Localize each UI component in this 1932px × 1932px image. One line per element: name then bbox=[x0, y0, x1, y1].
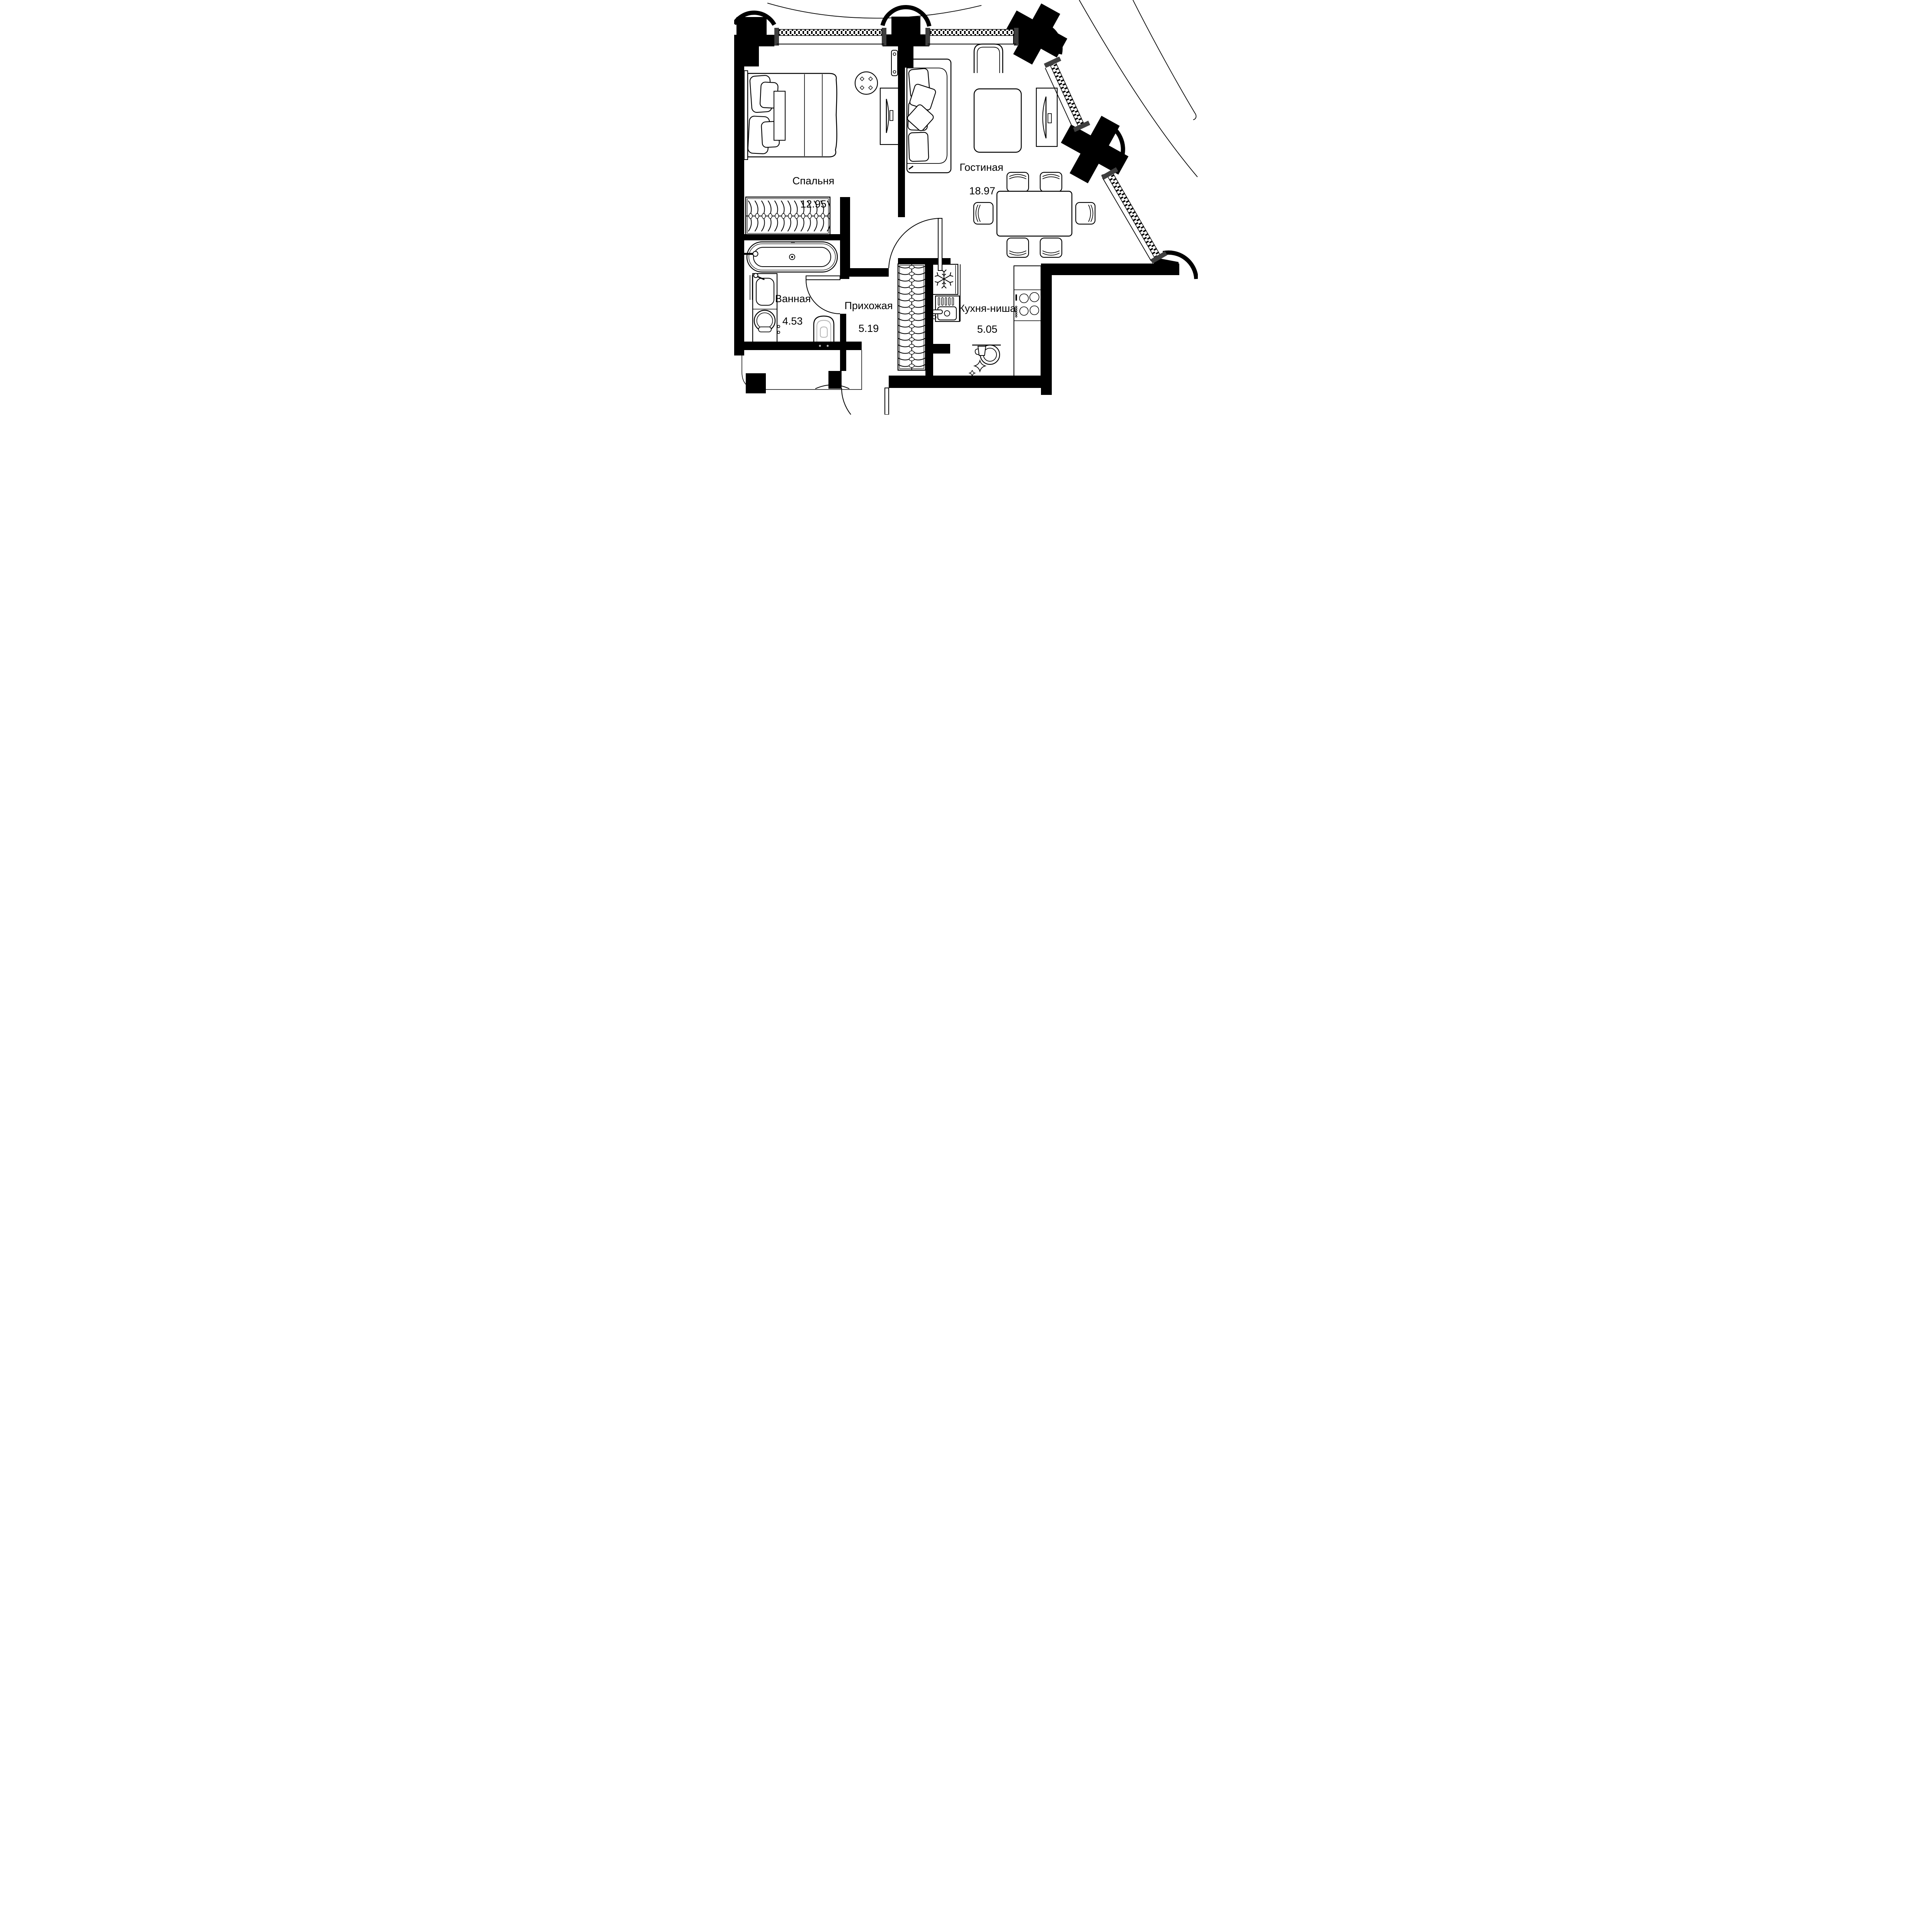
fridge-icon bbox=[932, 264, 958, 294]
bathroom-door bbox=[806, 276, 840, 314]
room-label-bathroom: Ванная 4.53 bbox=[775, 293, 811, 327]
bedroom-name: Спальня bbox=[793, 175, 835, 187]
armchair-icon bbox=[974, 44, 1003, 73]
hallway-closet-icon bbox=[898, 264, 925, 370]
window-band-diagonal-2 bbox=[1107, 172, 1161, 259]
window-band-living bbox=[930, 29, 1014, 36]
entry-door-leaf bbox=[885, 388, 889, 415]
toilet-mount-dot bbox=[827, 345, 828, 347]
tv-console-icon bbox=[1036, 88, 1057, 146]
column-east bbox=[1050, 105, 1139, 194]
cup-icon bbox=[978, 346, 986, 355]
entry-door-swing bbox=[842, 388, 851, 415]
bathtub-icon bbox=[744, 242, 837, 272]
kitchen-faucet-icon bbox=[932, 310, 942, 314]
dishwasher-icon bbox=[969, 345, 1001, 376]
sofa-icon bbox=[906, 59, 951, 173]
bathroom-door-leaf bbox=[806, 276, 840, 280]
floor-plan-page: Спальня 12.95 Гостиная 18.97 Ванная 4.53… bbox=[734, 0, 1198, 415]
dining-table-icon bbox=[997, 191, 1072, 236]
room-label-living: Гостиная 18.97 bbox=[959, 162, 1003, 197]
living-name: Гостиная bbox=[959, 162, 1003, 173]
toilet-mount-dot bbox=[819, 345, 821, 347]
room-label-kitchen: Кухня-ниша 5.05 bbox=[959, 303, 1016, 335]
rug-icon bbox=[974, 89, 1021, 152]
bathroom-door-swing bbox=[806, 280, 840, 314]
kitchen-name: Кухня-ниша bbox=[959, 303, 1016, 314]
kitchen-area: 5.05 bbox=[977, 323, 998, 335]
bedroom-dresser-tv-icon bbox=[880, 88, 901, 145]
living-area: 18.97 bbox=[969, 185, 995, 197]
hallway-area: 5.19 bbox=[859, 323, 879, 334]
bed-icon bbox=[744, 71, 837, 160]
round-side-table-icon bbox=[855, 72, 878, 94]
window-band-bedroom bbox=[779, 29, 882, 36]
toilet-icon bbox=[814, 316, 834, 342]
cooktop-icon bbox=[1014, 266, 1041, 379]
wall-mirror-icon bbox=[891, 50, 898, 76]
hallway-name: Прихожая bbox=[844, 300, 893, 311]
bedroom-door-leaf bbox=[938, 218, 942, 270]
bedroom-area: 12.95 bbox=[800, 198, 827, 210]
room-label-hallway: Прихожая 5.19 bbox=[844, 300, 893, 334]
floor-plan: Спальня 12.95 Гостиная 18.97 Ванная 4.53… bbox=[734, 0, 1198, 415]
bathroom-area: 4.53 bbox=[782, 315, 803, 327]
corner-column-ne bbox=[997, 0, 1076, 73]
bathroom-name: Ванная bbox=[775, 293, 811, 304]
entry-door bbox=[842, 388, 889, 415]
